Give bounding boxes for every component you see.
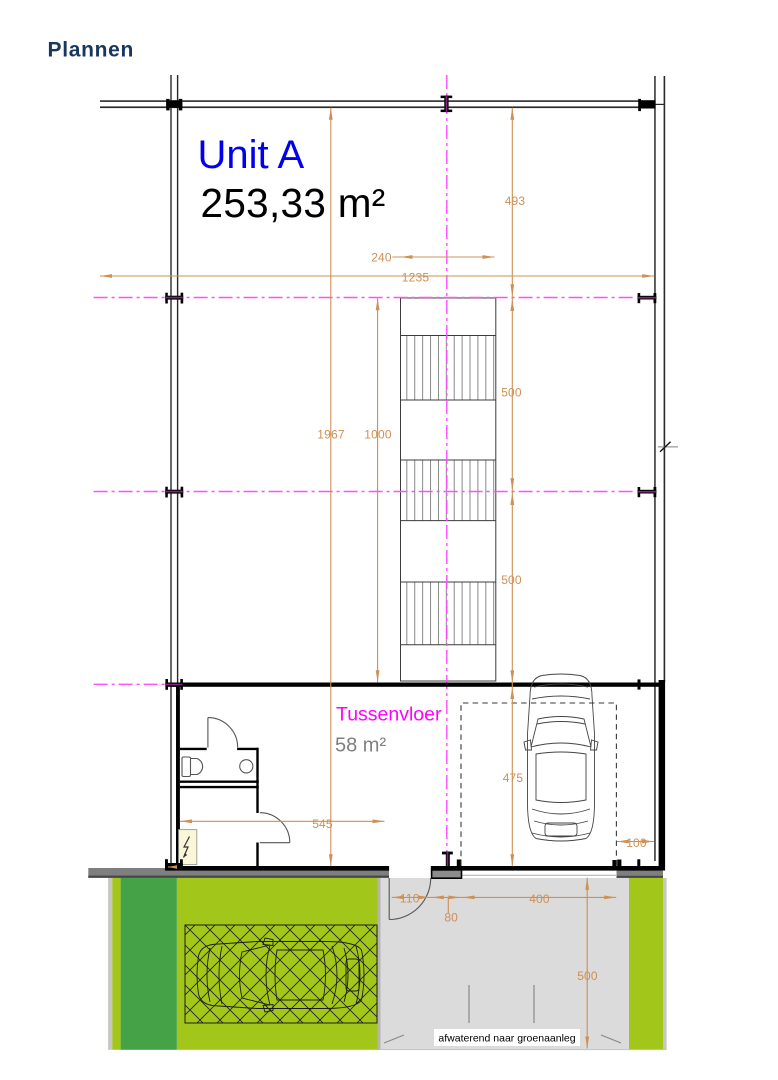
svg-text:475: 475 bbox=[503, 771, 524, 785]
svg-text:500: 500 bbox=[501, 573, 522, 587]
svg-text:Plannen: Plannen bbox=[48, 39, 135, 62]
svg-text:58 m²: 58 m² bbox=[335, 735, 386, 757]
svg-text:110: 110 bbox=[400, 892, 420, 906]
svg-text:253,33 m²: 253,33 m² bbox=[201, 180, 386, 226]
svg-text:500: 500 bbox=[577, 969, 598, 983]
svg-text:100: 100 bbox=[626, 836, 647, 850]
svg-text:afwaterend naar groenaanleg: afwaterend naar groenaanleg bbox=[438, 1033, 575, 1045]
svg-text:400: 400 bbox=[529, 892, 550, 906]
svg-text:Tussenvloer: Tussenvloer bbox=[336, 704, 442, 726]
svg-text:1000: 1000 bbox=[364, 428, 392, 442]
svg-text:240: 240 bbox=[371, 251, 392, 265]
svg-text:80: 80 bbox=[444, 911, 458, 925]
svg-text:1967: 1967 bbox=[317, 428, 345, 442]
svg-text:545: 545 bbox=[312, 817, 333, 831]
svg-text:493: 493 bbox=[505, 194, 526, 208]
svg-text:1235: 1235 bbox=[402, 271, 430, 285]
svg-text:Unit A: Unit A bbox=[198, 133, 305, 177]
svg-text:500: 500 bbox=[501, 386, 522, 400]
